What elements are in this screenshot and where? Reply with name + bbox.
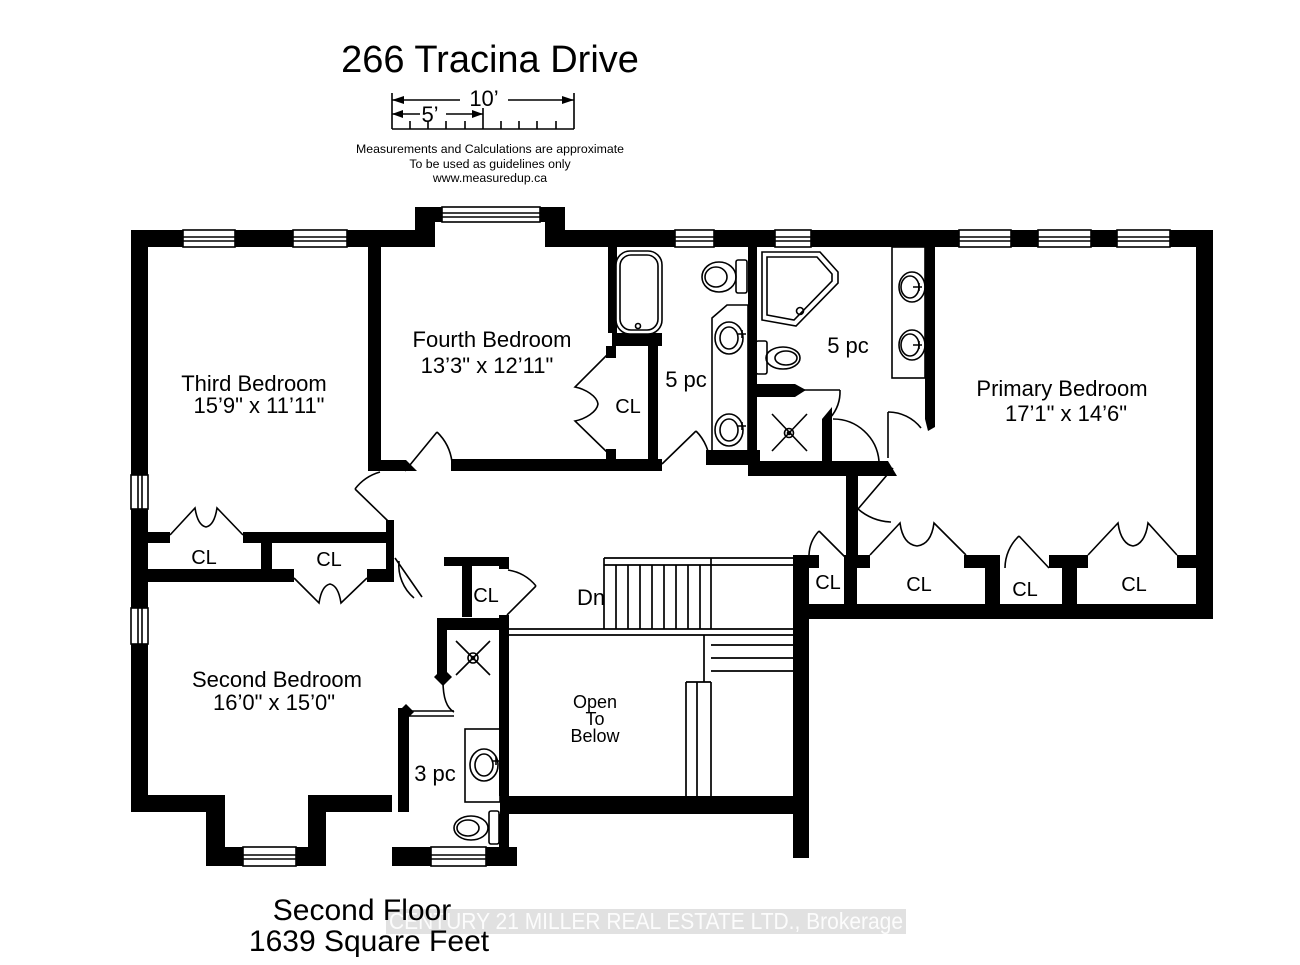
svg-text:CL: CL — [316, 549, 342, 571]
svg-text:CL: CL — [473, 585, 499, 607]
svg-text:1639 Square Feet: 1639 Square Feet — [249, 925, 490, 958]
svg-text:Second Floor: Second Floor — [273, 894, 451, 927]
svg-text:3 pc: 3 pc — [414, 761, 456, 786]
svg-text:www.measuredup.ca: www.measuredup.ca — [432, 171, 547, 185]
svg-text:CL: CL — [906, 574, 932, 596]
svg-text:17’1" x 14’6": 17’1" x 14’6" — [1005, 401, 1127, 426]
svg-text:Fourth Bedroom: Fourth Bedroom — [413, 327, 572, 352]
svg-text:CL: CL — [1012, 579, 1038, 601]
svg-text:5’: 5’ — [421, 102, 438, 127]
svg-text:266 Tracina Drive: 266 Tracina Drive — [341, 39, 639, 81]
svg-text:10’: 10’ — [469, 86, 498, 111]
svg-text:To be used as guidelines only: To be used as guidelines only — [409, 157, 571, 171]
svg-text:CL: CL — [191, 547, 217, 569]
svg-text:Second Bedroom: Second Bedroom — [192, 667, 362, 692]
svg-text:Primary Bedroom: Primary Bedroom — [976, 376, 1147, 401]
svg-text:CL: CL — [815, 572, 841, 594]
svg-text:15’9" x 11’11": 15’9" x 11’11" — [193, 393, 324, 418]
svg-text:16’0" x 15’0": 16’0" x 15’0" — [213, 690, 335, 715]
svg-text:5 pc: 5 pc — [827, 333, 869, 358]
svg-text:5 pc: 5 pc — [665, 367, 707, 392]
svg-text:13’3" x 12’11": 13’3" x 12’11" — [421, 353, 554, 378]
svg-text:CL: CL — [615, 396, 641, 418]
svg-text:CL: CL — [1121, 574, 1147, 596]
svg-text:Measurements and Calculations: Measurements and Calculations are approx… — [356, 142, 624, 156]
svg-text:Dn: Dn — [577, 585, 605, 610]
svg-text:Below: Below — [570, 726, 620, 746]
